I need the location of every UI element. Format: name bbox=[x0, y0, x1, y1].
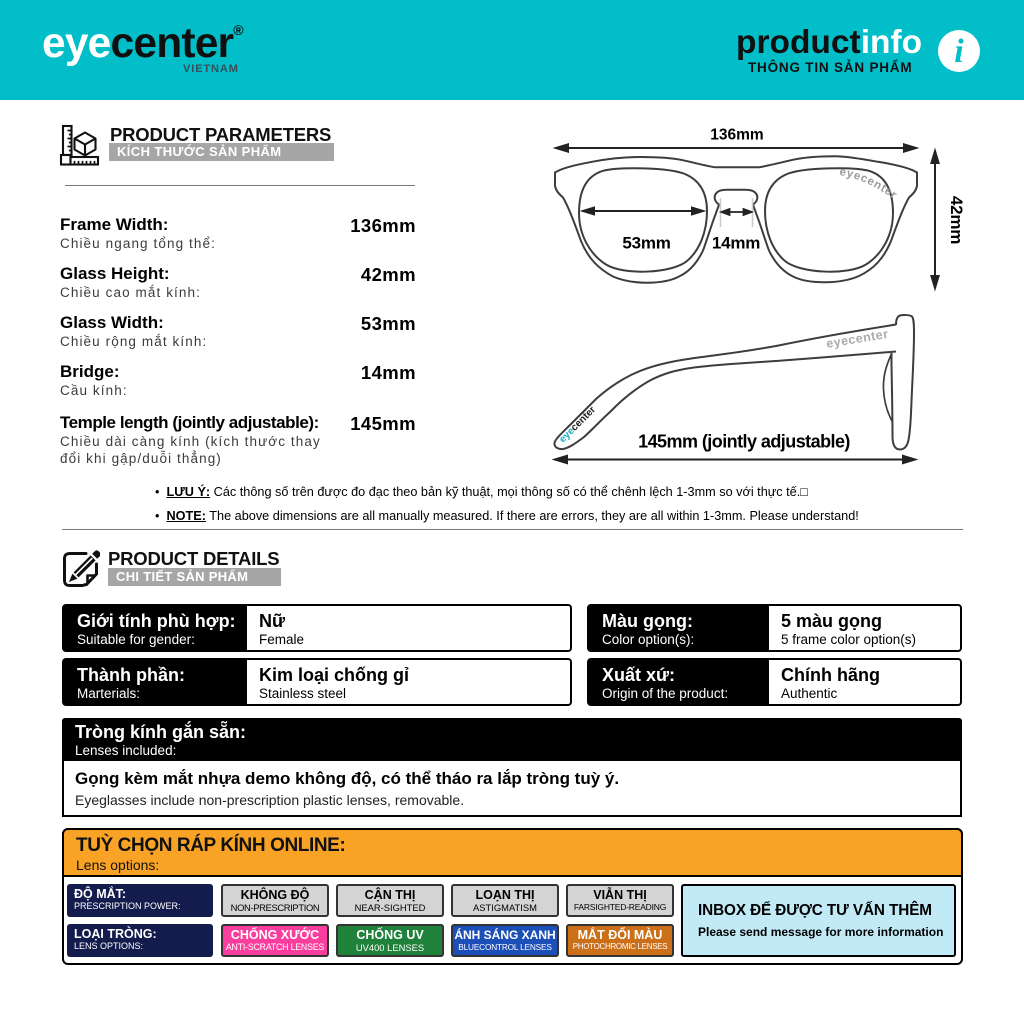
svg-text:145mm (jointly adjustable): 145mm (jointly adjustable) bbox=[638, 432, 850, 452]
svg-text:136mm: 136mm bbox=[710, 127, 763, 144]
svg-text:53mm: 53mm bbox=[622, 233, 670, 252]
svg-text:14mm: 14mm bbox=[712, 233, 760, 252]
svg-text:42mm: 42mm bbox=[947, 196, 966, 244]
